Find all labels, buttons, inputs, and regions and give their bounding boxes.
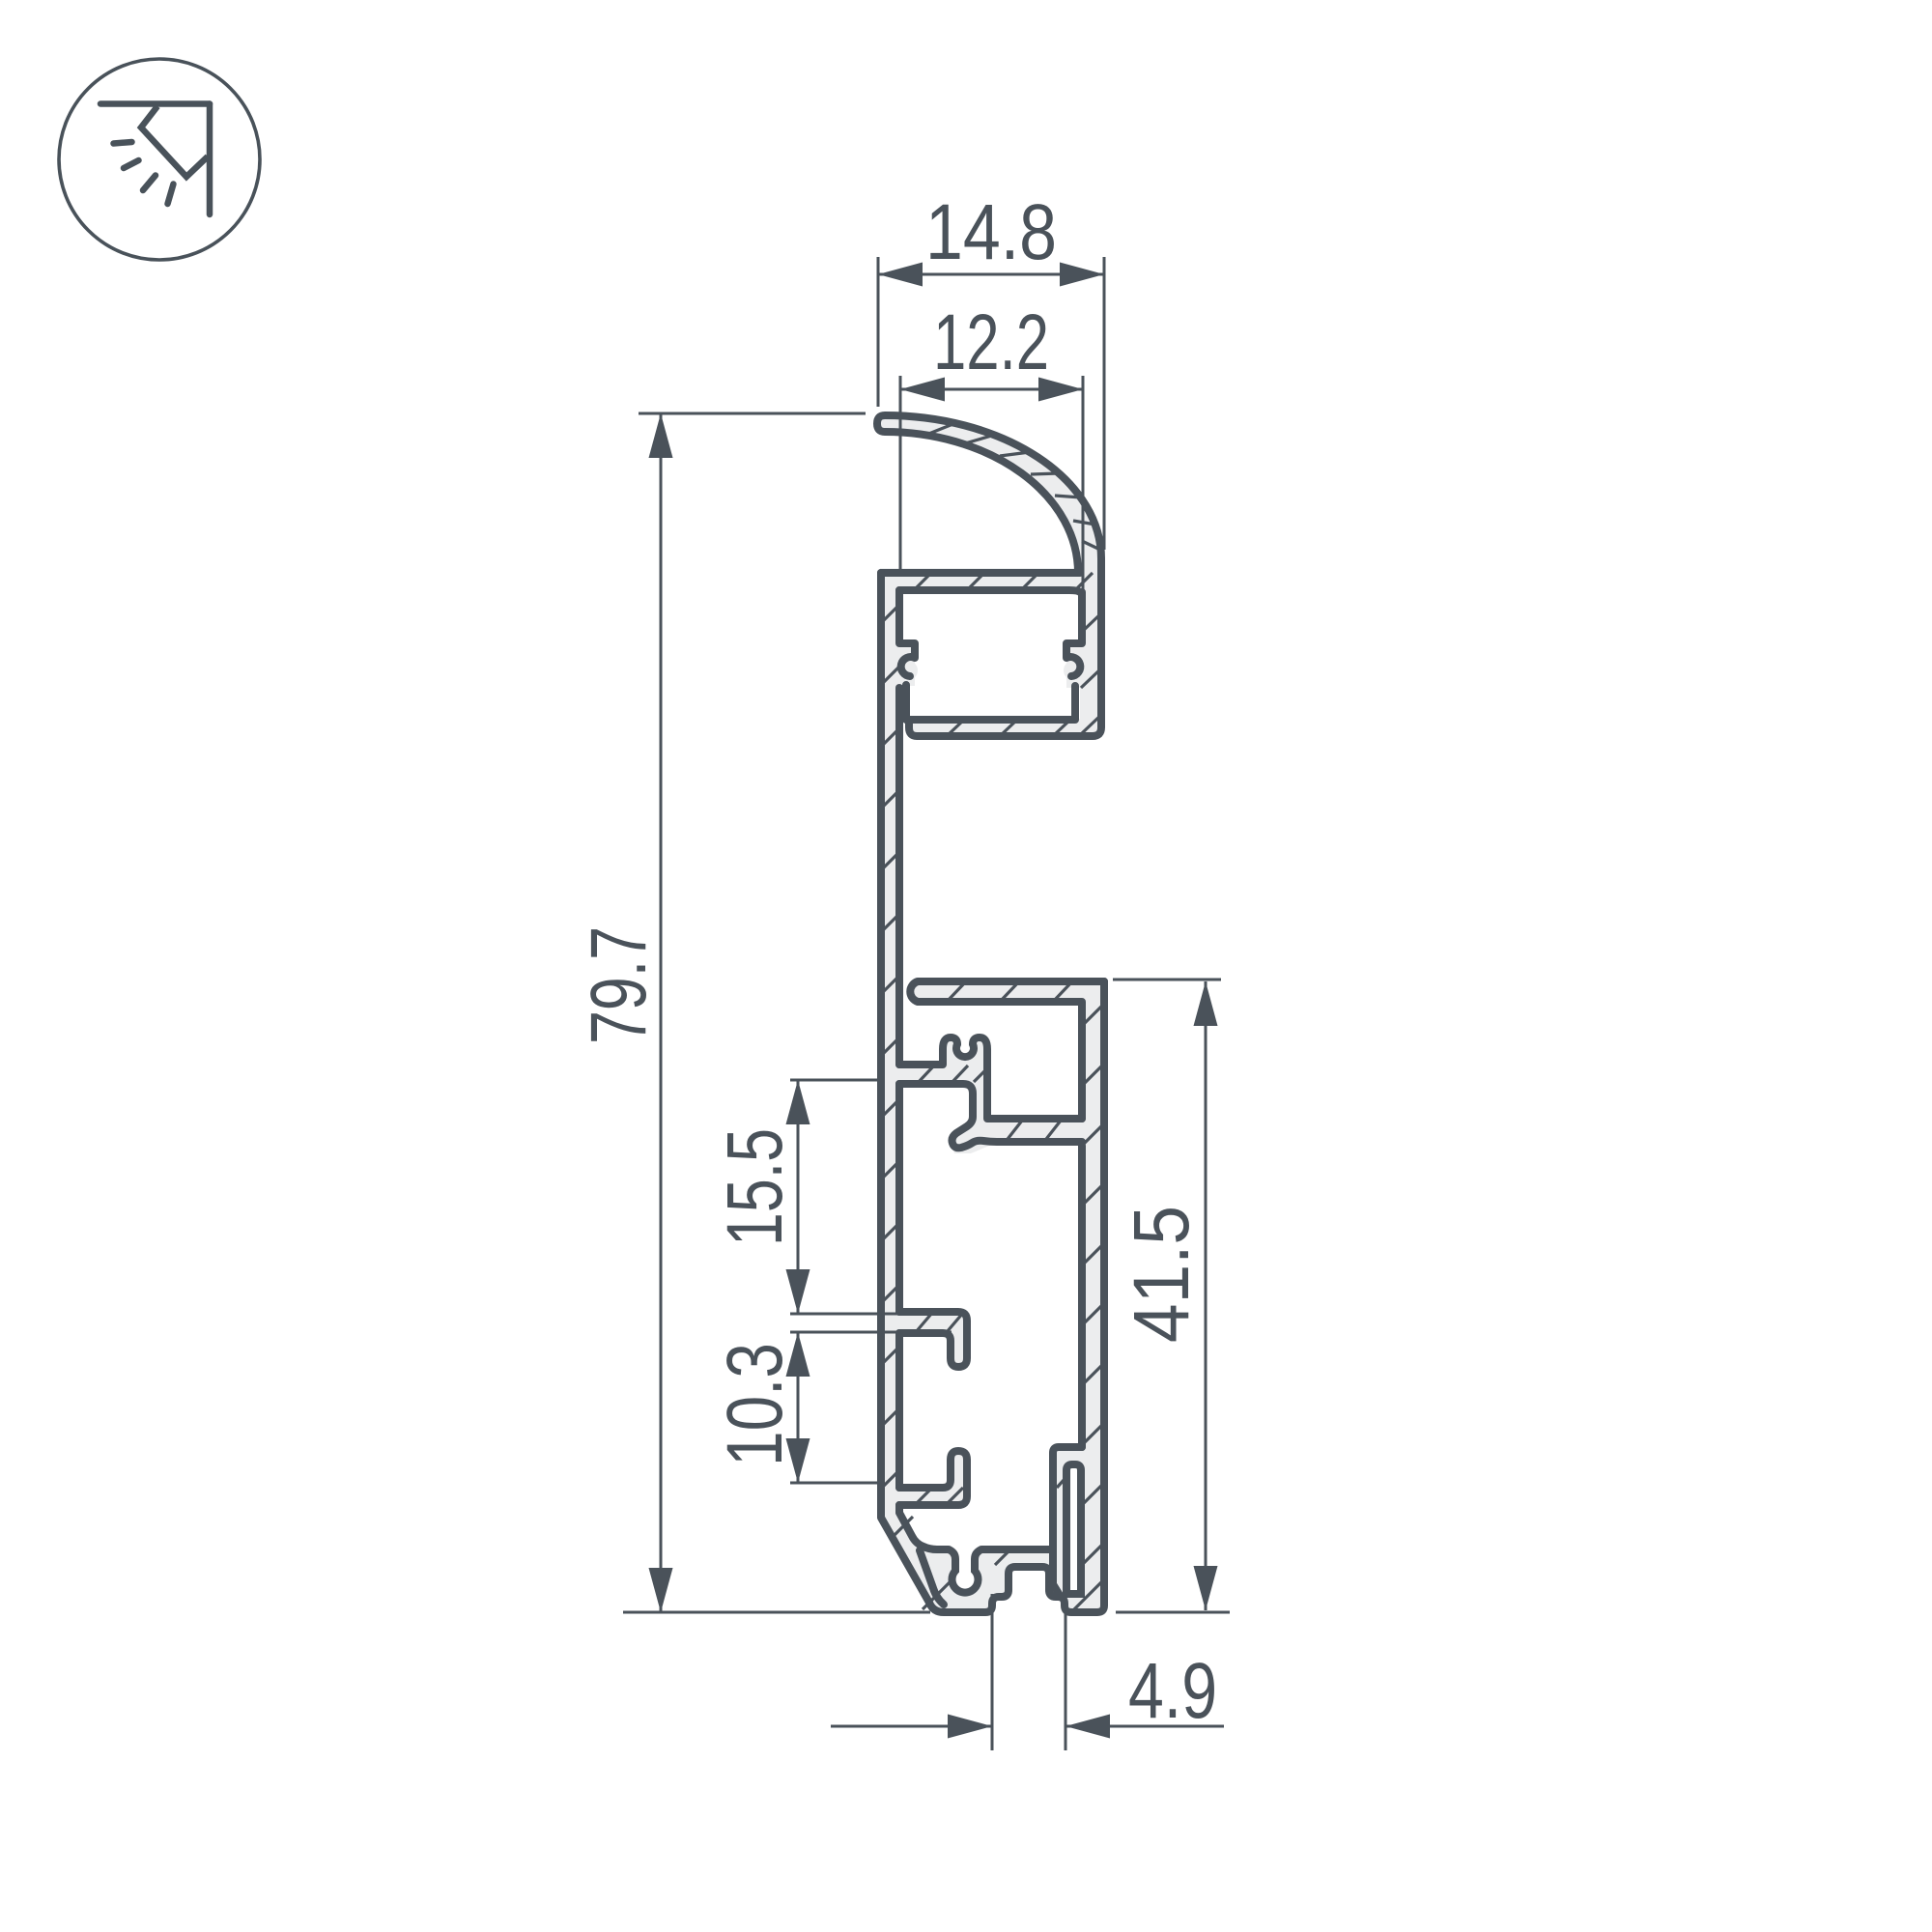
- svg-text:14.8: 14.8: [925, 188, 1057, 276]
- svg-text:15.5: 15.5: [711, 1128, 799, 1246]
- svg-text:10.3: 10.3: [711, 1343, 799, 1466]
- svg-text:41.5: 41.5: [1118, 1206, 1206, 1343]
- svg-text:79.7: 79.7: [575, 926, 663, 1044]
- svg-text:12.2: 12.2: [933, 298, 1049, 386]
- svg-text:4.9: 4.9: [1128, 1647, 1217, 1735]
